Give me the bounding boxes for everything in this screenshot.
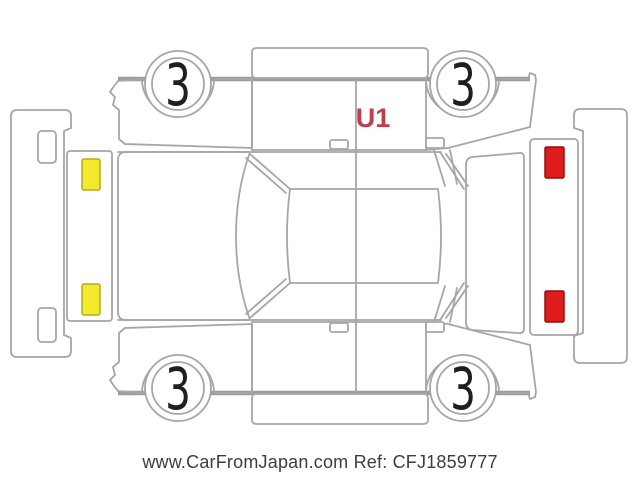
- headlight-left-bottom: [38, 308, 56, 342]
- damage-code-label: U1: [356, 103, 391, 133]
- wheel-top-right: 3: [430, 51, 496, 119]
- wheel-grade-label: 3: [450, 356, 476, 423]
- a-pillar-top-a: [250, 154, 290, 189]
- c-pillar-line-bottom-a: [434, 286, 445, 322]
- rear-bumper-outline: [574, 109, 627, 363]
- door-handle-top-front: [330, 140, 348, 149]
- trunk-rear-window-outline: [466, 153, 524, 333]
- c-pillar-line-top-a: [434, 150, 445, 186]
- plan-view: [118, 79, 524, 393]
- wheel-grade-label: 3: [165, 356, 191, 423]
- damage-marker-red-bottom: [545, 291, 564, 322]
- damage-marker-yellow-bottom: [82, 284, 100, 315]
- door-handle-bottom-rear: [426, 322, 444, 332]
- rear-bumper: [574, 109, 627, 363]
- damage-marker-red-top: [545, 147, 564, 178]
- car-damage-diagram: U1 3 3: [0, 0, 640, 480]
- rear-panel-strip: [530, 139, 578, 335]
- a-pillar-top-b: [246, 158, 286, 193]
- wheel-grade-label: 3: [165, 52, 191, 119]
- damage-marker-yellow-top: [82, 159, 100, 190]
- roof-outline: [287, 189, 441, 283]
- rocker-strip-top: [252, 48, 428, 78]
- wheel-top-left: 3: [145, 51, 211, 119]
- front-bumper: [11, 110, 71, 357]
- a-pillar-bottom-a: [250, 283, 290, 318]
- diagram-canvas: U1 3 3: [0, 0, 640, 480]
- front-panel-strip: [67, 151, 112, 321]
- rocker-strip-bottom: [252, 394, 428, 424]
- a-pillar-bottom-b: [246, 279, 286, 314]
- hood-outline: [118, 152, 250, 320]
- wheel-grade-label: 3: [450, 52, 476, 119]
- wheel-bottom-left: 3: [145, 355, 211, 423]
- wheel-bottom-right: 3: [430, 355, 496, 423]
- door-handle-top-rear: [426, 138, 444, 148]
- door-handle-bottom-front: [330, 323, 348, 332]
- headlight-left-top: [38, 131, 56, 163]
- watermark-text: www.CarFromJapan.com Ref: CFJ1859777: [141, 452, 497, 472]
